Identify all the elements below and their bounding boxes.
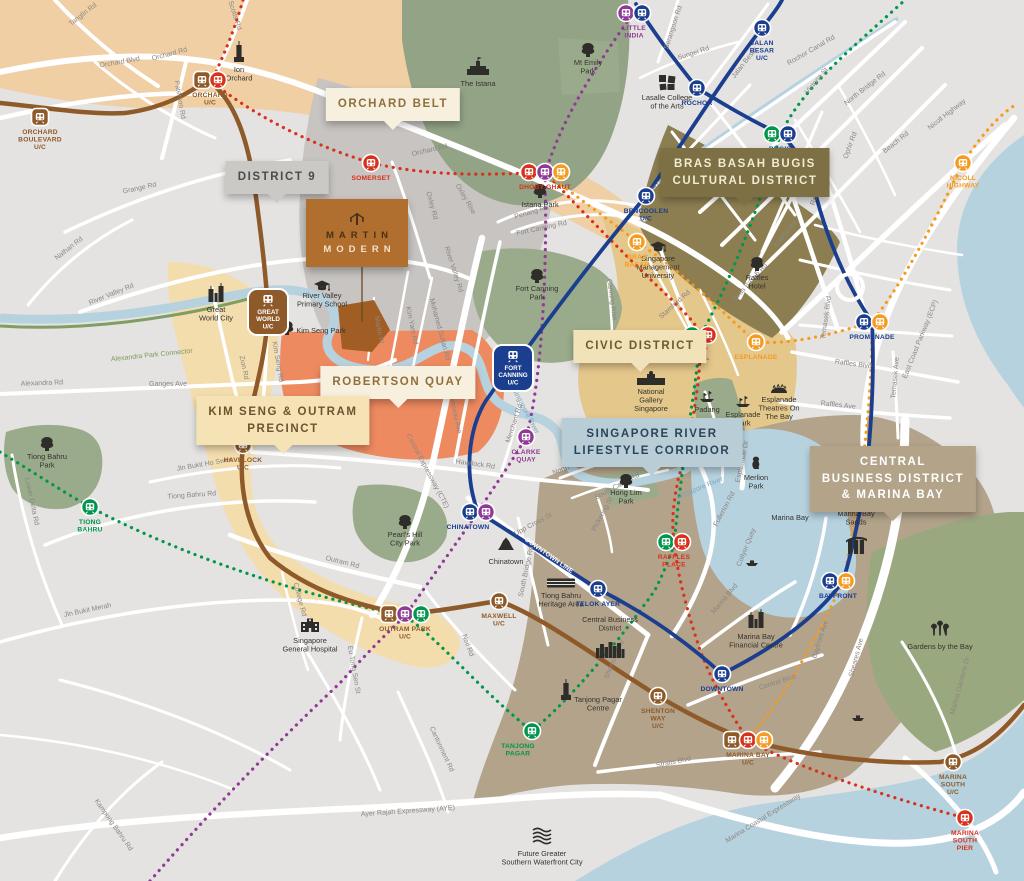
station-label: DOWNTOWN <box>700 686 743 693</box>
station-label: NICOLL <box>950 175 976 182</box>
station-label: MARINA <box>951 830 979 837</box>
station-label: MARINA BAY <box>726 752 770 759</box>
landmark-label: Kim Seng Park <box>296 326 346 335</box>
callout-line: CULTURAL DISTRICT <box>673 173 818 190</box>
landmark-label: City Park <box>390 538 420 547</box>
station-label: U/C <box>493 620 505 627</box>
station-bayfront: BAYFRONT <box>819 573 858 601</box>
callout-line: CENTRAL <box>822 454 964 471</box>
station-label: SHENTON <box>641 708 675 715</box>
callout-kim-seng-outram: KIM SENG & OUTRAMPRECINCT <box>196 396 369 445</box>
station-label: WORLD <box>256 316 280 323</box>
landmark-label: General Hospital <box>282 644 337 653</box>
map-canvas: Tanglin RdOrchard RdScotts RdOrchard Blv… <box>0 0 1024 881</box>
landmark-label: Southern Waterfront City <box>501 857 582 866</box>
callout-line: ROBERTSON QUAY <box>332 374 463 391</box>
station-label: U/C <box>652 723 664 730</box>
station-label: HAVELOCK <box>224 457 263 464</box>
callout-line: SINGAPORE RIVER <box>574 426 731 443</box>
landmark-label: Park <box>618 496 634 505</box>
station-label: U/C <box>756 55 768 62</box>
station-label: GREAT <box>257 309 279 316</box>
station-label: MARINA <box>939 774 967 781</box>
landmark-label: of the Arts <box>650 101 684 110</box>
landmark-label: District <box>599 623 622 632</box>
callout-orchard-belt: ORCHARD BELT <box>326 88 460 121</box>
station-label: CANNING <box>498 372 527 379</box>
station-label: U/C <box>263 323 274 330</box>
station-label: BOULEVARD <box>18 136 62 143</box>
station-label: TELOK AYER <box>576 601 620 608</box>
callout-line: DISTRICT 9 <box>238 169 317 186</box>
station-label: U/C <box>399 633 411 640</box>
landmark-label: The Bay <box>765 412 793 421</box>
landmark-label: Singapore <box>634 404 668 413</box>
landmark-label: Padang <box>694 405 719 414</box>
station-label: ESPLANADE <box>734 354 777 361</box>
landmark-label: Financial Centre <box>729 640 783 649</box>
station-label: U/C <box>640 215 652 222</box>
station-label: OUTRAM PARK <box>379 626 431 633</box>
callout-line: CIVIC DISTRICT <box>585 338 694 355</box>
station-label: HIGHWAY <box>947 182 980 189</box>
station-label: ORCHARD <box>192 92 228 99</box>
station-label: FORT <box>504 365 521 372</box>
station-label: LITTLE <box>622 25 646 32</box>
landmark-label: Park <box>580 66 596 75</box>
callout-robertson-quay: ROBERTSON QUAY <box>320 366 475 399</box>
station-fort-canning: FORTCANNINGU/C <box>493 345 533 391</box>
station-label: U/C <box>204 99 216 106</box>
callout-line: KIM SENG & OUTRAM <box>208 404 357 421</box>
station-label: ROCHOR <box>682 100 713 107</box>
landmark-label: Primary School <box>297 299 347 308</box>
station-label: PAGAR <box>506 750 531 757</box>
station-label: QUAY <box>516 456 536 463</box>
landmark-label: University <box>642 271 675 280</box>
landmark-label: Chinatown <box>489 557 524 566</box>
station-label: TIONG <box>79 519 101 526</box>
station-label: ORCHARD <box>22 129 58 136</box>
callout-line: PRECINCT <box>208 421 357 438</box>
road-label: Alexandra Rd <box>21 379 64 387</box>
landmark-label: Centre <box>587 703 609 712</box>
landmark-label: Park <box>748 481 764 490</box>
landmark-label: Orchard <box>226 73 253 82</box>
station-label: RAFFLES <box>658 554 691 561</box>
landmark-label: The Istana <box>461 79 497 88</box>
station-label: PLACE <box>662 561 686 568</box>
station-great-world: GREATWORLDU/C <box>248 289 288 335</box>
station-label: CLARKE <box>511 449 540 456</box>
map-stage: Tanglin RdOrchard RdScotts RdOrchard Blv… <box>0 0 1024 881</box>
station-label: PROMENADE <box>849 334 895 341</box>
station-label: MAXWELL <box>481 613 516 620</box>
merlion-icon <box>752 457 759 469</box>
station-label: U/C <box>34 144 46 151</box>
marina-bay-water: Marina Bay <box>771 513 809 522</box>
brand-name-line1: MARTIN <box>321 230 393 241</box>
landmark-label: Hotel <box>748 281 766 290</box>
callout-district-9: DISTRICT 9 <box>226 161 329 194</box>
station-label: U/C <box>947 789 959 796</box>
callout-line: BUSINESS DISTRICT <box>822 471 964 488</box>
station-dhoby-ghaut: DHOBY GHAUT <box>519 164 572 192</box>
station-label: BENCOOLEN <box>624 208 669 215</box>
station-label: WAY <box>650 715 666 722</box>
callout-singapore-river-corridor: SINGAPORE RIVERLIFESTYLE CORRIDOR <box>562 418 743 467</box>
callout-line: ORCHARD BELT <box>338 96 448 113</box>
callout-line: LIFESTYLE CORRIDOR <box>574 443 731 460</box>
station-label: JALAN <box>750 40 773 47</box>
station-label: INDIA <box>624 32 643 39</box>
station-label: TANJONG <box>501 743 535 750</box>
station-label: SOUTH <box>941 781 965 788</box>
callout-civic-district: CIVIC DISTRICT <box>573 330 706 363</box>
martin-modern-logo-icon <box>347 211 367 227</box>
landmark-label: Park <box>529 292 545 301</box>
martin-modern-logo: MARTIN MODERN <box>306 199 408 267</box>
longbuilding-icon <box>547 579 575 588</box>
station-label: CHINATOWN <box>447 524 490 531</box>
landmark-label: Marina Bay <box>771 513 809 522</box>
station-label: BASAH <box>625 261 650 268</box>
road-label: Ganges Ave <box>149 381 187 388</box>
callout-bras-basah-bugis: BRAS BASAH BUGISCULTURAL DISTRICT <box>661 148 830 197</box>
station-label: DHOBY GHAUT <box>519 184 572 191</box>
station-label: BAHRU <box>77 526 102 533</box>
station-label: SOMERSET <box>351 175 391 182</box>
station-label: BESAR <box>750 47 774 54</box>
station-label: U/C <box>508 379 519 386</box>
station-label: SOUTH <box>953 837 977 844</box>
landmark-label: Sands <box>846 517 867 526</box>
landmark-label: Gardens by the Bay <box>907 642 973 651</box>
brand-name-line2: MODERN <box>318 244 395 255</box>
skyline-icon <box>596 642 625 658</box>
callout-cbd-marina-bay: CENTRALBUSINESS DISTRICT& MARINA BAY <box>810 446 976 512</box>
station-label: PIER <box>957 845 973 852</box>
callout-line: & MARINA BAY <box>822 487 964 504</box>
station-label: U/C <box>742 759 754 766</box>
landmark-label: World City <box>199 313 233 322</box>
landmark-label: Park <box>39 460 55 469</box>
station-label: BAYFRONT <box>819 593 858 600</box>
callout-line: BRAS BASAH BUGIS <box>673 156 818 173</box>
station-label: U/C <box>237 464 249 471</box>
landmark-label: Istana Park <box>521 200 559 209</box>
station-label: BRAS <box>627 254 647 261</box>
